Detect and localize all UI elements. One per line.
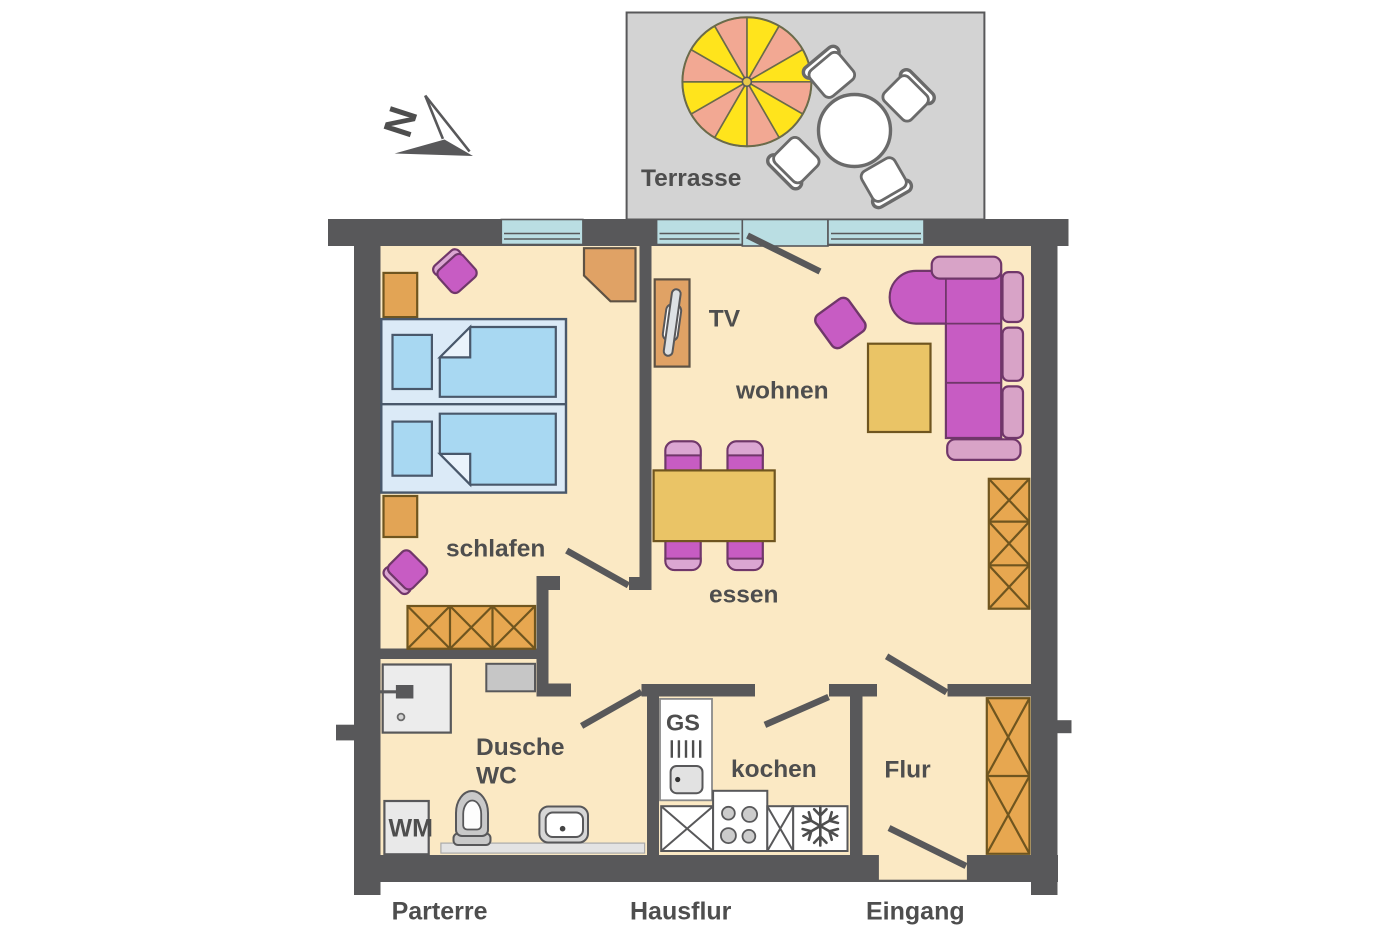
svg-text:WC: WC bbox=[476, 763, 517, 790]
svg-text:Terrasse: Terrasse bbox=[641, 165, 741, 192]
svg-text:TV: TV bbox=[709, 306, 741, 333]
svg-text:Hausflur: Hausflur bbox=[630, 898, 732, 926]
svg-text:kochen: kochen bbox=[731, 756, 817, 783]
svg-text:Dusche: Dusche bbox=[476, 734, 565, 761]
svg-text:Parterre: Parterre bbox=[392, 898, 488, 926]
svg-text:WM: WM bbox=[389, 815, 433, 843]
svg-text:schlafen: schlafen bbox=[446, 536, 545, 563]
svg-text:Flur: Flur bbox=[884, 757, 931, 784]
svg-text:Eingang: Eingang bbox=[866, 898, 965, 926]
svg-text:essen: essen bbox=[709, 582, 778, 609]
svg-text:GS: GS bbox=[666, 710, 700, 736]
svg-text:wohnen: wohnen bbox=[735, 378, 829, 405]
